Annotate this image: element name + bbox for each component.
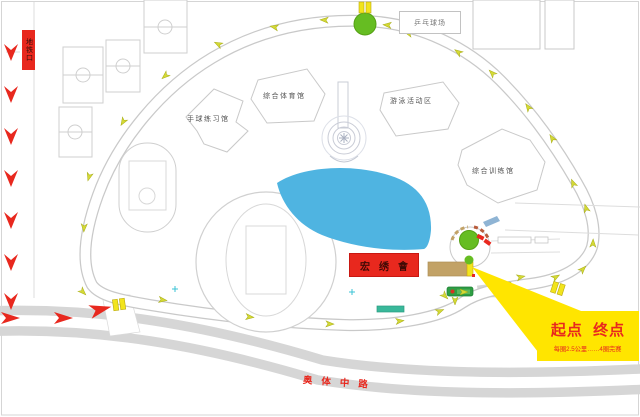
pingpong-court-shape — [473, 0, 540, 49]
pingpong-court-shape — [545, 0, 574, 49]
flower-icon — [339, 133, 349, 143]
tree-icon — [354, 13, 376, 35]
swimming-area-shape — [380, 82, 459, 136]
blue-slab — [483, 216, 500, 227]
tan-building — [428, 262, 472, 276]
basketball-courts — [59, 0, 187, 157]
down-arrow-icon — [4, 128, 18, 145]
down-arrow-icon — [4, 170, 18, 187]
teal-stage — [377, 306, 404, 312]
callout-title: 起点 终点 — [551, 319, 625, 340]
handball-hall-label: 手球练习馆 — [187, 114, 230, 124]
callout-subtitle: 每圈2.5公里……4圈完赛 — [554, 343, 622, 353]
gymnasium-label: 综合体育馆 — [263, 91, 306, 101]
swimming-area-label: 游泳活动区 — [390, 96, 433, 106]
sports-center-route-map: 地铁口 乒乓球场 手球练习馆 综合体育馆 游泳活动区 综合训练馆 宏绣會 奥体中… — [0, 0, 640, 417]
red-building-sign: 宏绣會 — [349, 253, 419, 277]
tree-icon — [460, 231, 479, 250]
gate-icon — [359, 2, 371, 13]
start-finish-callout: 起点 终点 每圈2.5公里……4圈完赛 — [537, 311, 639, 361]
practice-track — [119, 143, 176, 232]
tower — [322, 82, 366, 162]
left-route-chevrons — [4, 44, 18, 310]
down-arrow-icon — [4, 254, 18, 271]
training-hall-label: 综合训练馆 — [472, 166, 515, 176]
subway-entrance-sign: 地铁口 — [22, 30, 35, 70]
down-arrow-icon — [4, 212, 18, 229]
down-arrow-icon — [4, 86, 18, 103]
pingpong-court-label: 乒乓球场 — [399, 11, 461, 34]
